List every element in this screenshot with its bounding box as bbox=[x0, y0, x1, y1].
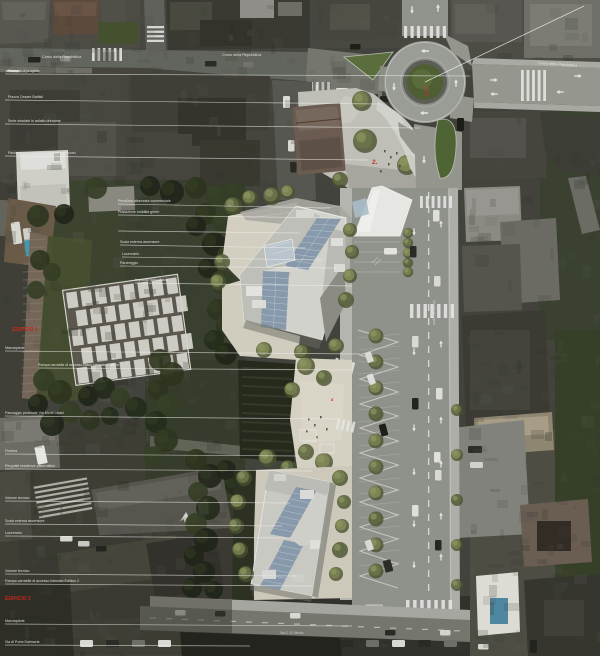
svg-text:Marciapiede: Marciapiede bbox=[5, 346, 25, 350]
svg-text:1.: 1. bbox=[425, 91, 430, 97]
svg-text:Scala esterna ascensore: Scala esterna ascensore bbox=[120, 240, 160, 244]
svg-text:Parcheggio: Parcheggio bbox=[120, 261, 138, 265]
svg-text:EDIFICIO 1: EDIFICIO 1 bbox=[12, 327, 38, 333]
svg-text:Fioriera: Fioriera bbox=[5, 449, 17, 453]
svg-text:Volume tecnico: Volume tecnico bbox=[5, 496, 29, 500]
svg-text:Lucernario: Lucernario bbox=[5, 531, 22, 535]
svg-text:Corso della Repubblica: Corso della Repubblica bbox=[42, 55, 82, 59]
svg-text:Passaggio pedonale Via Monti L: Passaggio pedonale Via Monti Lepini bbox=[5, 411, 64, 415]
svg-text:Corso della Repubblica: Corso della Repubblica bbox=[222, 53, 262, 57]
svg-text:Postazione mobilita green: Postazione mobilita green bbox=[118, 210, 159, 214]
svg-text:Via di Porta Dalmazia: Via di Porta Dalmazia bbox=[5, 640, 40, 644]
svg-text:Impianto fotovoltaico: Impianto fotovoltaico bbox=[135, 278, 168, 282]
svg-text:Lucernario: Lucernario bbox=[122, 252, 139, 256]
svg-text:Rampa carrabile di accesso int: Rampa carrabile di accesso interrato Edi… bbox=[5, 579, 79, 583]
svg-text:Piazza Cesare Battisti: Piazza Cesare Battisti bbox=[8, 95, 43, 99]
svg-text:Sede stradale in asfalto drena: Sede stradale in asfalto drenante bbox=[8, 119, 61, 123]
svg-text:Marciapiede: Marciapiede bbox=[5, 619, 25, 623]
svg-text:Volume tecnico: Volume tecnico bbox=[5, 569, 29, 573]
svg-text:Rotonda di progetto: Rotonda di progetto bbox=[8, 69, 40, 73]
svg-text:Rampa carrabile di accesso pia: Rampa carrabile di accesso piano interra… bbox=[38, 363, 122, 367]
svg-text:Via Monti Lepini: Via Monti Lepini bbox=[432, 300, 436, 325]
svg-text:Pensilina attrezzata commercia: Pensilina attrezzata commerciale bbox=[118, 199, 171, 203]
svg-text:Pavimento architettonico piazz: Pavimento architettonico piazze e percor… bbox=[8, 151, 76, 155]
svg-text:Via G. Di Vittorio: Via G. Di Vittorio bbox=[280, 631, 304, 635]
svg-text:Pergolati residenze piano atti: Pergolati residenze piano attico bbox=[5, 464, 55, 468]
svg-text:2.: 2. bbox=[372, 159, 378, 166]
svg-text:Scala esterna ascensore: Scala esterna ascensore bbox=[5, 519, 45, 523]
svg-text:EDIFICIO 2: EDIFICIO 2 bbox=[5, 596, 31, 602]
